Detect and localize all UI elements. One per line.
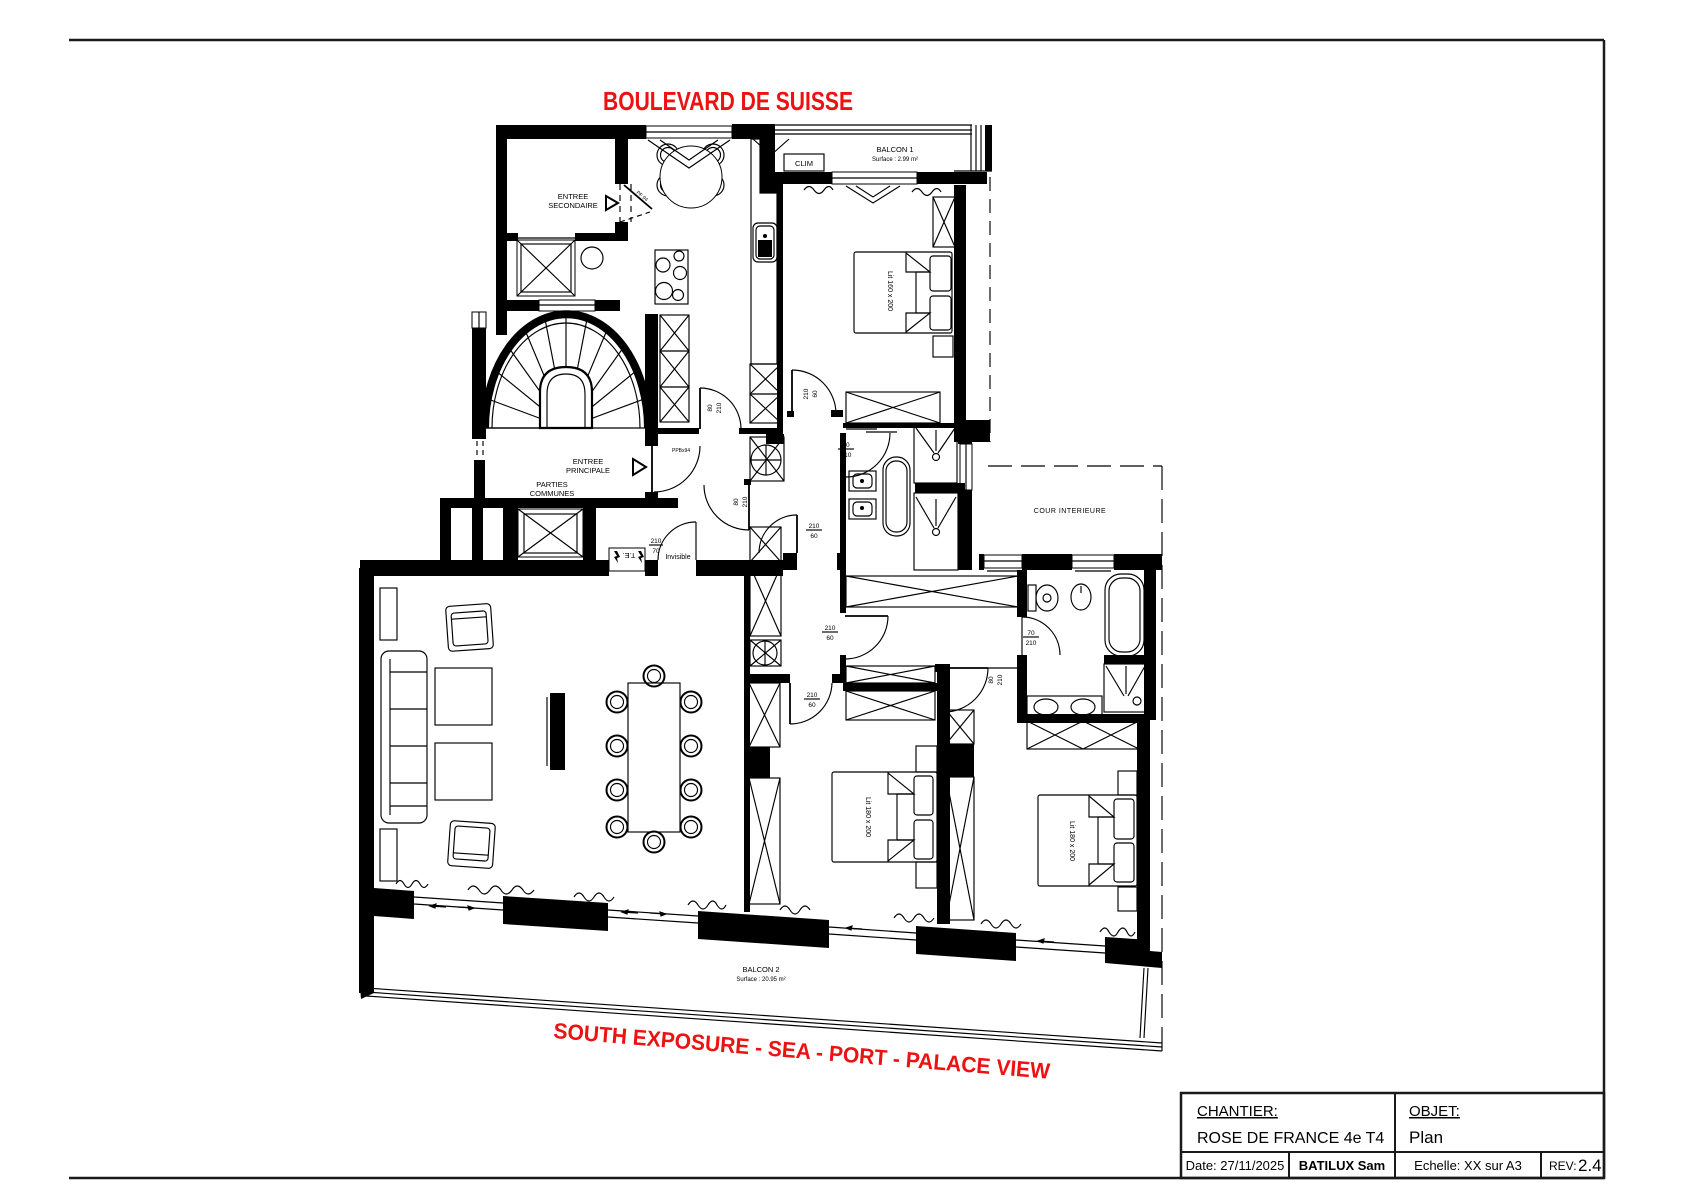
svg-text:Lit 180 x 200: Lit 180 x 200 bbox=[864, 797, 871, 837]
svg-text:210: 210 bbox=[807, 692, 818, 699]
svg-text:BOULEVARD DE SUISSE: BOULEVARD DE SUISSE bbox=[603, 86, 853, 116]
svg-text:210: 210 bbox=[742, 496, 749, 507]
svg-text:ENTREE: ENTREE bbox=[573, 457, 603, 466]
svg-text:210: 210 bbox=[997, 674, 1004, 685]
svg-text:PARTIES: PARTIES bbox=[536, 480, 567, 489]
svg-text:60: 60 bbox=[810, 533, 818, 540]
svg-text:80: 80 bbox=[988, 676, 995, 684]
svg-text:Surface : 2.99 m²: Surface : 2.99 m² bbox=[872, 157, 918, 163]
svg-text:70: 70 bbox=[652, 548, 660, 555]
svg-text:COUR INTERIEURE: COUR INTERIEURE bbox=[1034, 508, 1106, 515]
svg-text:CHANTIER:: CHANTIER: bbox=[1197, 1103, 1278, 1120]
svg-text:CLIM: CLIM bbox=[795, 159, 813, 168]
svg-text:210: 210 bbox=[825, 625, 836, 632]
svg-text:Lit 160 x 200: Lit 160 x 200 bbox=[886, 271, 893, 311]
svg-text:BALCON 1: BALCON 1 bbox=[876, 145, 913, 154]
svg-text:Echelle: XX sur A3: Echelle: XX sur A3 bbox=[1414, 1158, 1522, 1173]
svg-text:2.4: 2.4 bbox=[1578, 1156, 1602, 1175]
svg-text:60: 60 bbox=[826, 635, 834, 642]
svg-text:Surface : 20.95 m²: Surface : 20.95 m² bbox=[736, 977, 785, 983]
svg-text:Plan: Plan bbox=[1409, 1128, 1443, 1147]
svg-text:SECONDAIRE: SECONDAIRE bbox=[548, 201, 598, 210]
svg-text:PPBx94: PPBx94 bbox=[672, 448, 690, 454]
svg-text:210: 210 bbox=[803, 388, 810, 399]
svg-text:80: 80 bbox=[733, 498, 740, 506]
svg-text:60: 60 bbox=[812, 390, 819, 398]
svg-text:70: 70 bbox=[1027, 630, 1035, 637]
svg-text:COMMUNES: COMMUNES bbox=[530, 489, 575, 498]
svg-text:Date: 27/11/2025: Date: 27/11/2025 bbox=[1186, 1158, 1285, 1173]
svg-text:BATILUX Sam: BATILUX Sam bbox=[1299, 1158, 1385, 1173]
svg-text:ENTREE: ENTREE bbox=[558, 192, 588, 201]
svg-text:210: 210 bbox=[1026, 640, 1037, 647]
svg-text:60: 60 bbox=[808, 702, 816, 709]
svg-text:Lit 180 x 200: Lit 180 x 200 bbox=[1068, 821, 1075, 861]
svg-text:REV:: REV: bbox=[1549, 1159, 1577, 1173]
svg-text:210: 210 bbox=[651, 538, 662, 545]
svg-text:OBJET:: OBJET: bbox=[1409, 1103, 1460, 1120]
svg-text:Invisible: Invisible bbox=[665, 554, 690, 561]
svg-text:ROSE DE FRANCE 4e T4: ROSE DE FRANCE 4e T4 bbox=[1197, 1130, 1384, 1147]
svg-text:210: 210 bbox=[809, 523, 820, 530]
svg-text:T.E.: T.E. bbox=[623, 551, 636, 560]
svg-text:PRINCIPALE: PRINCIPALE bbox=[566, 466, 610, 475]
svg-text:80: 80 bbox=[707, 404, 714, 412]
svg-text:BALCON 2: BALCON 2 bbox=[742, 965, 779, 974]
svg-text:210: 210 bbox=[716, 402, 723, 413]
